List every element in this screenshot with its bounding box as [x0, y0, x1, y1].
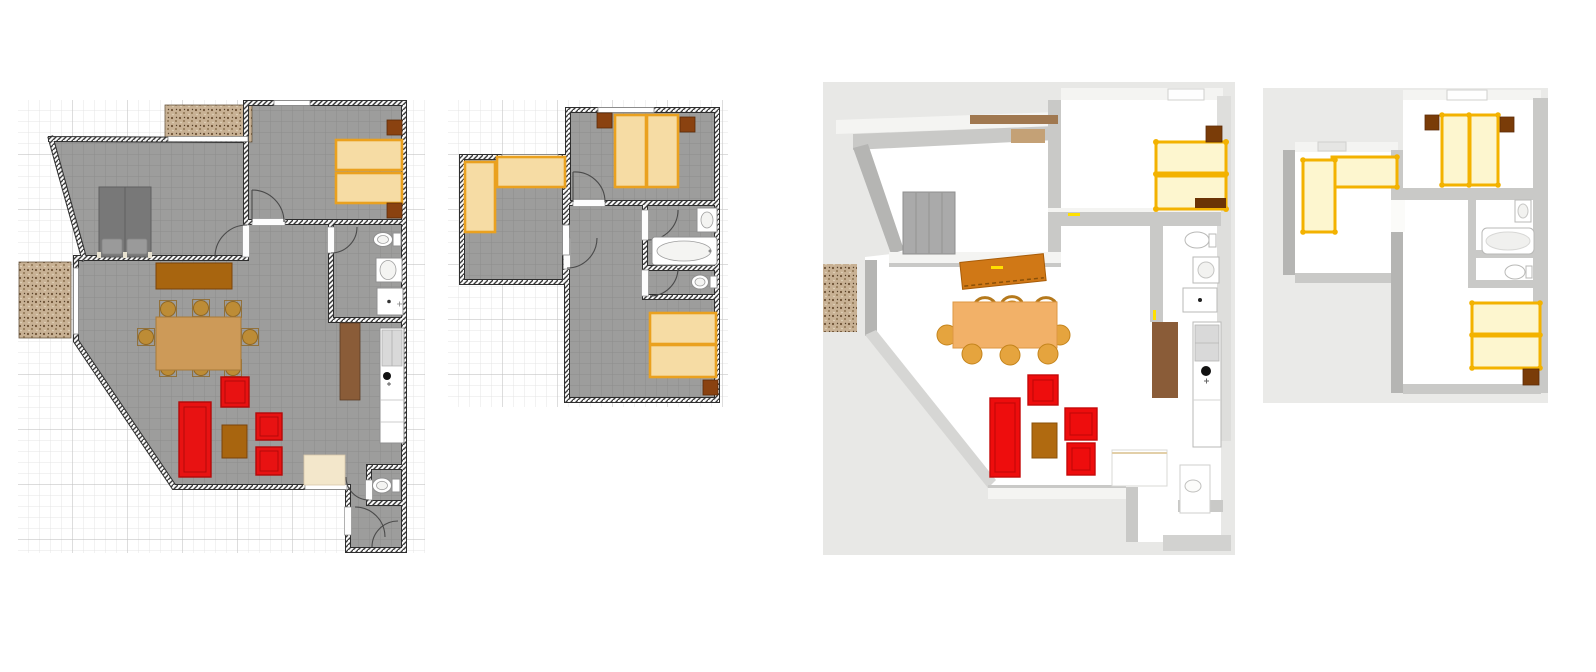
dining-table	[156, 317, 241, 370]
wall-shadow	[988, 485, 1126, 488]
coffee-table	[222, 425, 247, 458]
wall-living-south	[988, 488, 1126, 499]
wall-bathroom-west	[1150, 226, 1163, 322]
door-opening	[252, 219, 285, 226]
ground-floor-3d-render	[823, 82, 1235, 555]
nightstand	[1523, 369, 1539, 385]
nightstand	[680, 117, 695, 132]
double-bed-gold-ne	[1439, 112, 1501, 188]
dining-chair	[1038, 344, 1058, 364]
wall-south	[1403, 384, 1541, 394]
wardrobe-gray	[903, 192, 955, 254]
wc-toilet	[692, 275, 718, 289]
nightstand	[703, 380, 718, 395]
dining-chair	[962, 344, 982, 364]
skylight	[1168, 89, 1204, 100]
bathroom-fixtures	[374, 233, 404, 316]
wall-main-west	[1391, 220, 1403, 393]
wall-west-room-south	[1295, 273, 1398, 283]
window	[598, 108, 654, 113]
coffee-table	[1032, 423, 1057, 458]
washbasin	[697, 208, 717, 232]
window-inset	[1011, 129, 1045, 143]
kitchen-sink	[383, 372, 391, 380]
wall-entry-south	[1163, 535, 1231, 551]
door-opening	[642, 270, 649, 296]
wc-toilet	[373, 478, 401, 493]
nightstand	[387, 120, 402, 135]
single-bed-horizontal	[1332, 157, 1397, 187]
door-opening	[1391, 200, 1405, 232]
double-bed-south	[650, 313, 716, 377]
kitchen-block	[380, 328, 404, 443]
door-opening	[345, 507, 352, 535]
floor-plan-sheet	[0, 0, 1596, 672]
panel-3d-ground-floor	[823, 82, 1235, 555]
door-opening	[573, 200, 605, 207]
panel-2d-ground-floor	[18, 100, 425, 555]
dining-table	[953, 302, 1057, 348]
single-bed-horizontal	[497, 157, 565, 187]
panel-2d-upper-floor	[448, 100, 728, 408]
wall-entry	[1126, 487, 1138, 542]
washbasin	[376, 258, 402, 282]
tall-cabinet	[340, 323, 360, 400]
wall-bathroom-west	[1468, 192, 1476, 288]
door-opening	[243, 225, 250, 257]
single-bed-vertical	[465, 162, 495, 232]
window	[274, 101, 310, 106]
dining-chair	[1000, 345, 1020, 365]
upper-floor-3d-render	[1263, 88, 1548, 403]
wc-toilet	[1185, 480, 1201, 492]
door-opening	[366, 480, 373, 500]
double-bed-northeast	[615, 115, 678, 187]
bed-post	[97, 252, 101, 258]
sideboard	[156, 263, 232, 289]
nightstand	[597, 113, 612, 128]
bathtub	[1482, 228, 1534, 254]
double-bed-gray	[97, 187, 152, 258]
wall-living-west	[865, 260, 877, 336]
window	[563, 225, 570, 255]
door-opening	[642, 210, 649, 240]
window-lintel	[970, 115, 1058, 124]
shower	[377, 288, 403, 315]
nightstand	[387, 203, 402, 218]
entry-bench	[1112, 450, 1167, 486]
bed-post	[148, 252, 152, 258]
washbasin	[1193, 257, 1219, 283]
tall-cabinet-3d	[1152, 322, 1178, 398]
nightstand	[1500, 117, 1514, 132]
skylight	[1447, 90, 1487, 100]
upper-floor-plan-drawing	[448, 100, 728, 408]
ground-floor-plan-drawing	[18, 100, 425, 555]
single-bed-vertical	[1303, 160, 1335, 232]
kitchen-sink	[1201, 366, 1211, 376]
bed-post	[123, 252, 127, 258]
bathtub	[652, 237, 717, 265]
skylight	[1318, 142, 1346, 151]
kitchen-3d	[1193, 322, 1221, 447]
double-bed-gold-south	[1469, 300, 1543, 371]
wall-wc-south	[1476, 280, 1536, 288]
terrace-west-3d	[823, 264, 857, 332]
toilet	[1185, 232, 1216, 248]
door-mat	[304, 455, 345, 485]
window	[168, 137, 248, 142]
terrace-west	[19, 262, 71, 338]
wc-toilet	[1505, 265, 1532, 279]
shower	[1183, 288, 1217, 312]
nightstand	[1195, 198, 1226, 208]
nightstand	[1206, 126, 1222, 142]
wall-west	[1283, 150, 1295, 275]
door-opening	[328, 227, 335, 253]
wall-east-upper	[1533, 98, 1548, 198]
toilet	[374, 233, 402, 247]
panel-3d-upper-floor	[1263, 88, 1548, 403]
nightstand	[1425, 115, 1439, 130]
window	[74, 268, 79, 334]
